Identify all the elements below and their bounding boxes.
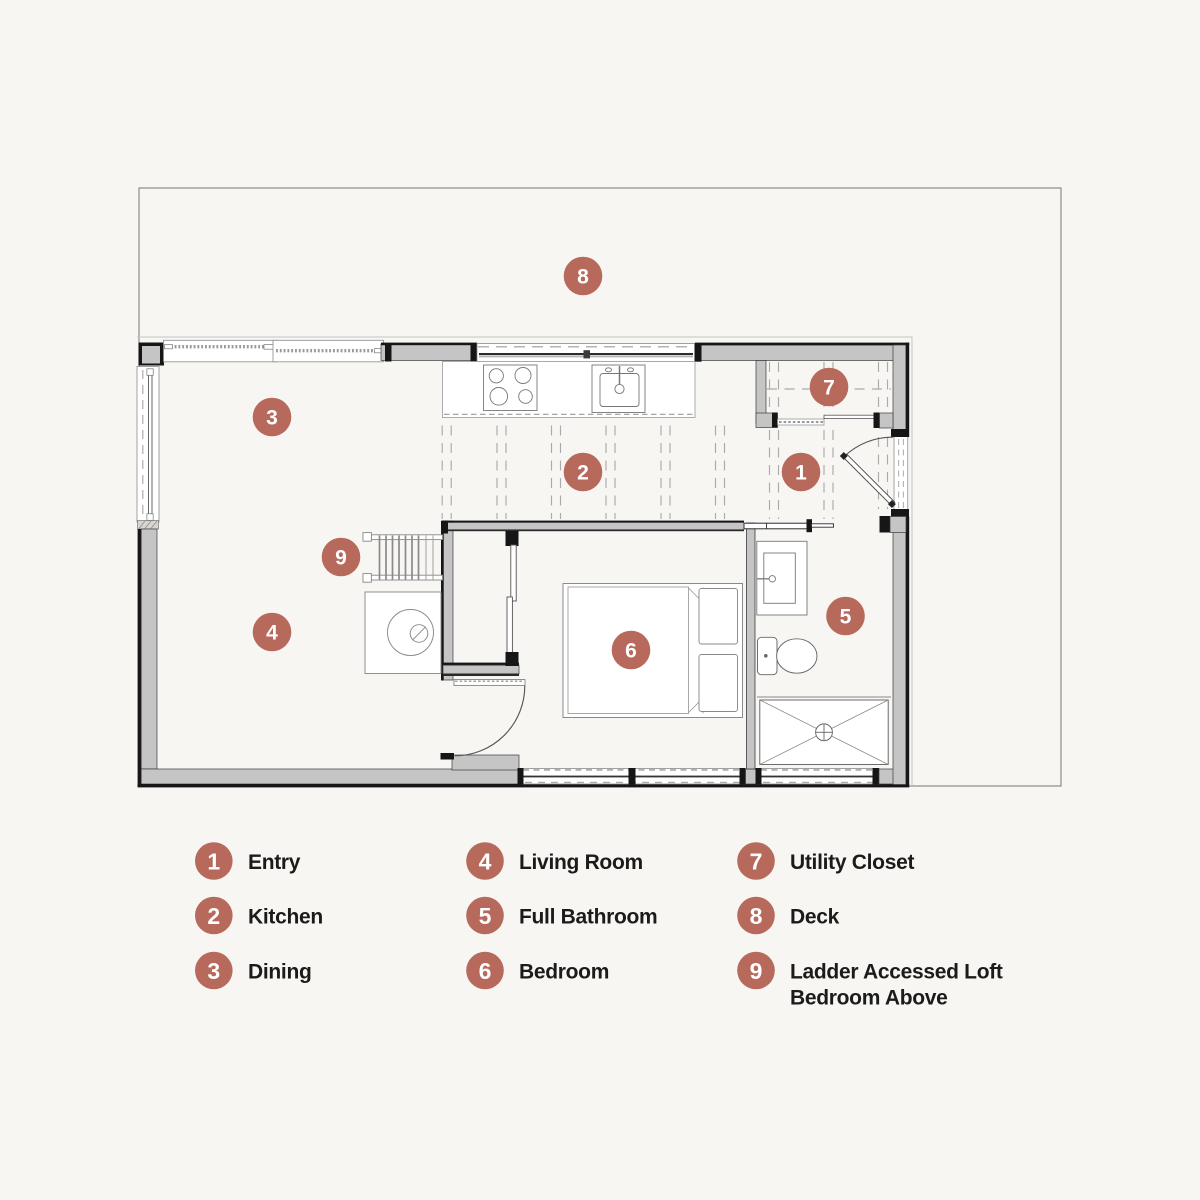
svg-text:7: 7 bbox=[750, 848, 763, 874]
svg-text:8: 8 bbox=[577, 266, 589, 289]
svg-text:Living Room: Living Room bbox=[519, 851, 643, 874]
svg-text:3: 3 bbox=[266, 407, 278, 430]
svg-text:Deck: Deck bbox=[790, 906, 840, 929]
svg-text:9: 9 bbox=[750, 958, 763, 984]
svg-text:Entry: Entry bbox=[248, 851, 301, 874]
svg-text:Ladder Accessed Loft: Ladder Accessed Loft bbox=[790, 961, 1003, 984]
svg-text:Full Bathroom: Full Bathroom bbox=[519, 906, 657, 929]
svg-text:4: 4 bbox=[266, 622, 278, 645]
svg-text:2: 2 bbox=[207, 903, 220, 929]
svg-text:Bedroom Above: Bedroom Above bbox=[790, 987, 948, 1010]
svg-text:Bedroom: Bedroom bbox=[519, 961, 609, 984]
svg-text:6: 6 bbox=[625, 640, 637, 663]
svg-text:2: 2 bbox=[577, 462, 589, 485]
svg-text:3: 3 bbox=[207, 958, 220, 984]
svg-text:6: 6 bbox=[479, 958, 492, 984]
svg-text:Dining: Dining bbox=[248, 961, 312, 984]
svg-text:Utility Closet: Utility Closet bbox=[790, 851, 914, 874]
svg-text:4: 4 bbox=[479, 848, 492, 874]
svg-text:5: 5 bbox=[479, 903, 492, 929]
svg-text:9: 9 bbox=[335, 547, 347, 570]
svg-text:1: 1 bbox=[207, 848, 220, 874]
svg-text:5: 5 bbox=[840, 606, 852, 629]
svg-text:Kitchen: Kitchen bbox=[248, 906, 323, 929]
svg-text:7: 7 bbox=[823, 377, 835, 400]
svg-text:1: 1 bbox=[795, 462, 807, 485]
svg-text:8: 8 bbox=[750, 903, 763, 929]
